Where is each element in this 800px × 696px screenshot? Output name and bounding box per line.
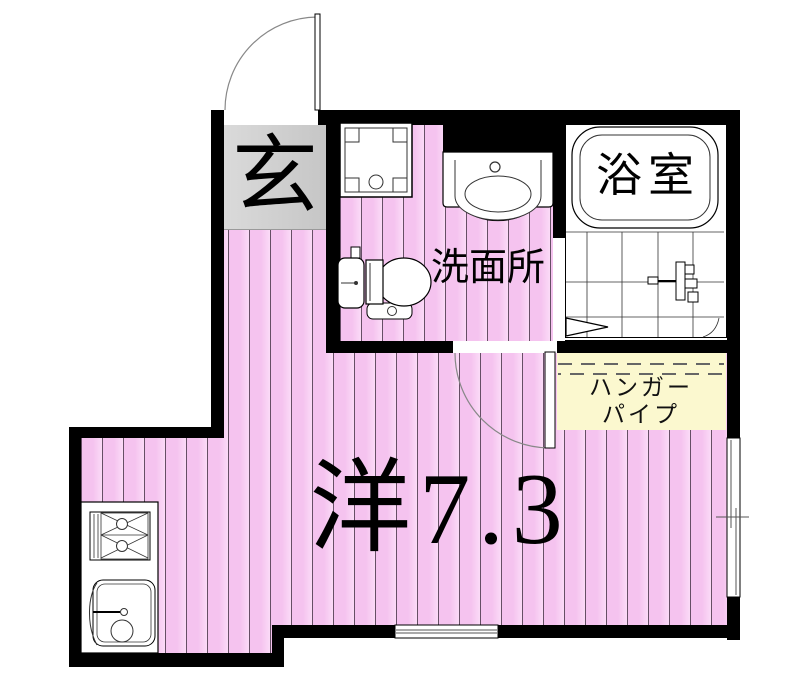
hanger-pipe-label-line2: パイプ	[557, 401, 725, 428]
washroom-label: 洗面所	[408, 247, 568, 291]
entrance-door-swing-icon	[225, 14, 320, 110]
hanger-pipe-label: ハンガー パイプ	[557, 374, 725, 428]
main-room-label: 洋7.3	[240, 452, 640, 572]
entrance-label: 玄	[224, 125, 326, 230]
floor-plan: 玄 洗面所 浴室 洋7.3 ハンガー パイプ	[0, 0, 800, 696]
bathroom-label: 浴室	[566, 151, 724, 201]
bottom-wall-window-icon	[395, 625, 498, 638]
right-wall-window-icon	[716, 438, 749, 597]
bathroom-tile-grid	[566, 232, 724, 337]
shower-mixer-icon	[648, 262, 698, 302]
hanger-pipe-label-line1: ハンガー	[557, 374, 725, 401]
washing-machine-pan-icon	[340, 123, 412, 197]
kitchen-unit-icon	[81, 502, 158, 653]
hanger-pipe-dashes	[558, 364, 724, 374]
main-room-door-swing-icon	[455, 352, 555, 448]
fixtures-layer	[0, 0, 800, 696]
washbasin-icon	[443, 152, 553, 221]
